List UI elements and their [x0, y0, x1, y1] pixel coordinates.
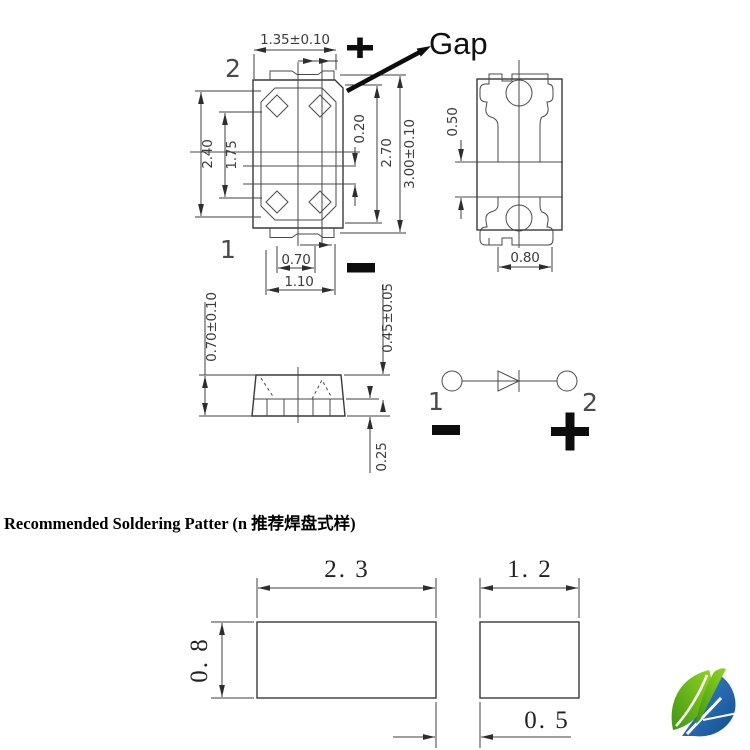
circuit-pin1-label: 1	[428, 387, 444, 416]
dim-label: 0.25	[374, 442, 390, 471]
top-view: 1.35±0.10 2.40 1.75 0.20 2.70	[190, 26, 488, 295]
bottom-tab-outline	[270, 228, 334, 238]
dim-label: 3.00±0.10	[402, 119, 418, 189]
dim-label: 1.75	[224, 140, 240, 169]
dim-label: 2. 3	[324, 556, 370, 583]
top-pad-outline	[480, 74, 553, 162]
left-pad	[257, 622, 436, 698]
dim-pad-width: 0.80	[498, 247, 552, 272]
dim-label: 0.20	[352, 114, 368, 143]
dim-label: 1. 2	[507, 556, 553, 583]
minus-icon	[432, 425, 460, 435]
circuit-pin2-label: 2	[582, 388, 598, 417]
dim-label: 0.70	[281, 252, 310, 268]
dim-right-pad-width: 1. 2	[480, 556, 579, 618]
right-pad	[480, 622, 579, 698]
corner-facet	[266, 191, 288, 213]
mold-line	[312, 380, 332, 399]
side-view: 0.70±0.10 0.45±0.05 0.25	[199, 283, 396, 473]
dim-label: 1.10	[284, 274, 313, 290]
dim-label: 2.70	[379, 138, 395, 167]
dim-label: 0. 5	[524, 707, 570, 734]
dim-total-thickness: 0.70±0.10	[199, 292, 256, 416]
plus-icon	[551, 413, 589, 451]
dim-left-pad-width: 2. 3	[257, 556, 436, 618]
dim-label: 1.35±0.10	[260, 32, 330, 48]
pin1-label: 1	[220, 235, 236, 264]
bottom-view: 0.50 0.80	[445, 60, 563, 272]
corner-facet	[309, 95, 331, 117]
terminal-2	[557, 371, 577, 391]
dim-pad-height: 0. 8	[186, 622, 254, 698]
mechanical-drawing: 1.35±0.10 2.40 1.75 0.20 2.70	[0, 0, 750, 750]
dim-pad-inner-width: 0.70	[277, 246, 315, 273]
dim-body-height: 2.70	[345, 85, 395, 223]
top-tab-outline	[270, 71, 334, 80]
dim-cavity-inner-height: 1.75	[219, 112, 262, 198]
soldering-title: Recommended Soldering Patter (n 推荐焊盘式样)	[4, 513, 356, 533]
pin2-label: 2	[225, 54, 241, 83]
gap-label: Gap	[429, 26, 488, 61]
dim-label: 2.40	[200, 139, 216, 168]
plus-icon	[347, 38, 373, 59]
corner-facet	[309, 191, 331, 213]
dim-label: 0.50	[445, 107, 461, 136]
dim-width-top: 1.35±0.10	[254, 32, 336, 79]
terminal-1	[442, 371, 462, 391]
datasheet-page: 1.35±0.10 2.40 1.75 0.20 2.70	[0, 0, 750, 750]
dim-label: 0.45±0.05	[380, 283, 396, 353]
dim-pad-gap: 0.50	[445, 107, 461, 219]
bottom-pad-outline	[480, 197, 553, 245]
minus-icon	[347, 263, 375, 273]
company-logo	[672, 668, 738, 736]
corner-facet	[266, 95, 288, 117]
mold-line	[261, 378, 274, 398]
dim-label: 0.80	[510, 250, 539, 266]
soldering-pattern: Recommended Soldering Patter (n 推荐焊盘式样) …	[4, 513, 579, 748]
circuit-diagram: 1 2	[428, 370, 598, 451]
dim-pad-gap: 0. 5	[393, 702, 571, 748]
dim-mid-gap: 0.20	[352, 114, 368, 206]
dim-label: 0. 8	[186, 637, 213, 683]
dim-label: 0.70±0.10	[204, 292, 220, 362]
